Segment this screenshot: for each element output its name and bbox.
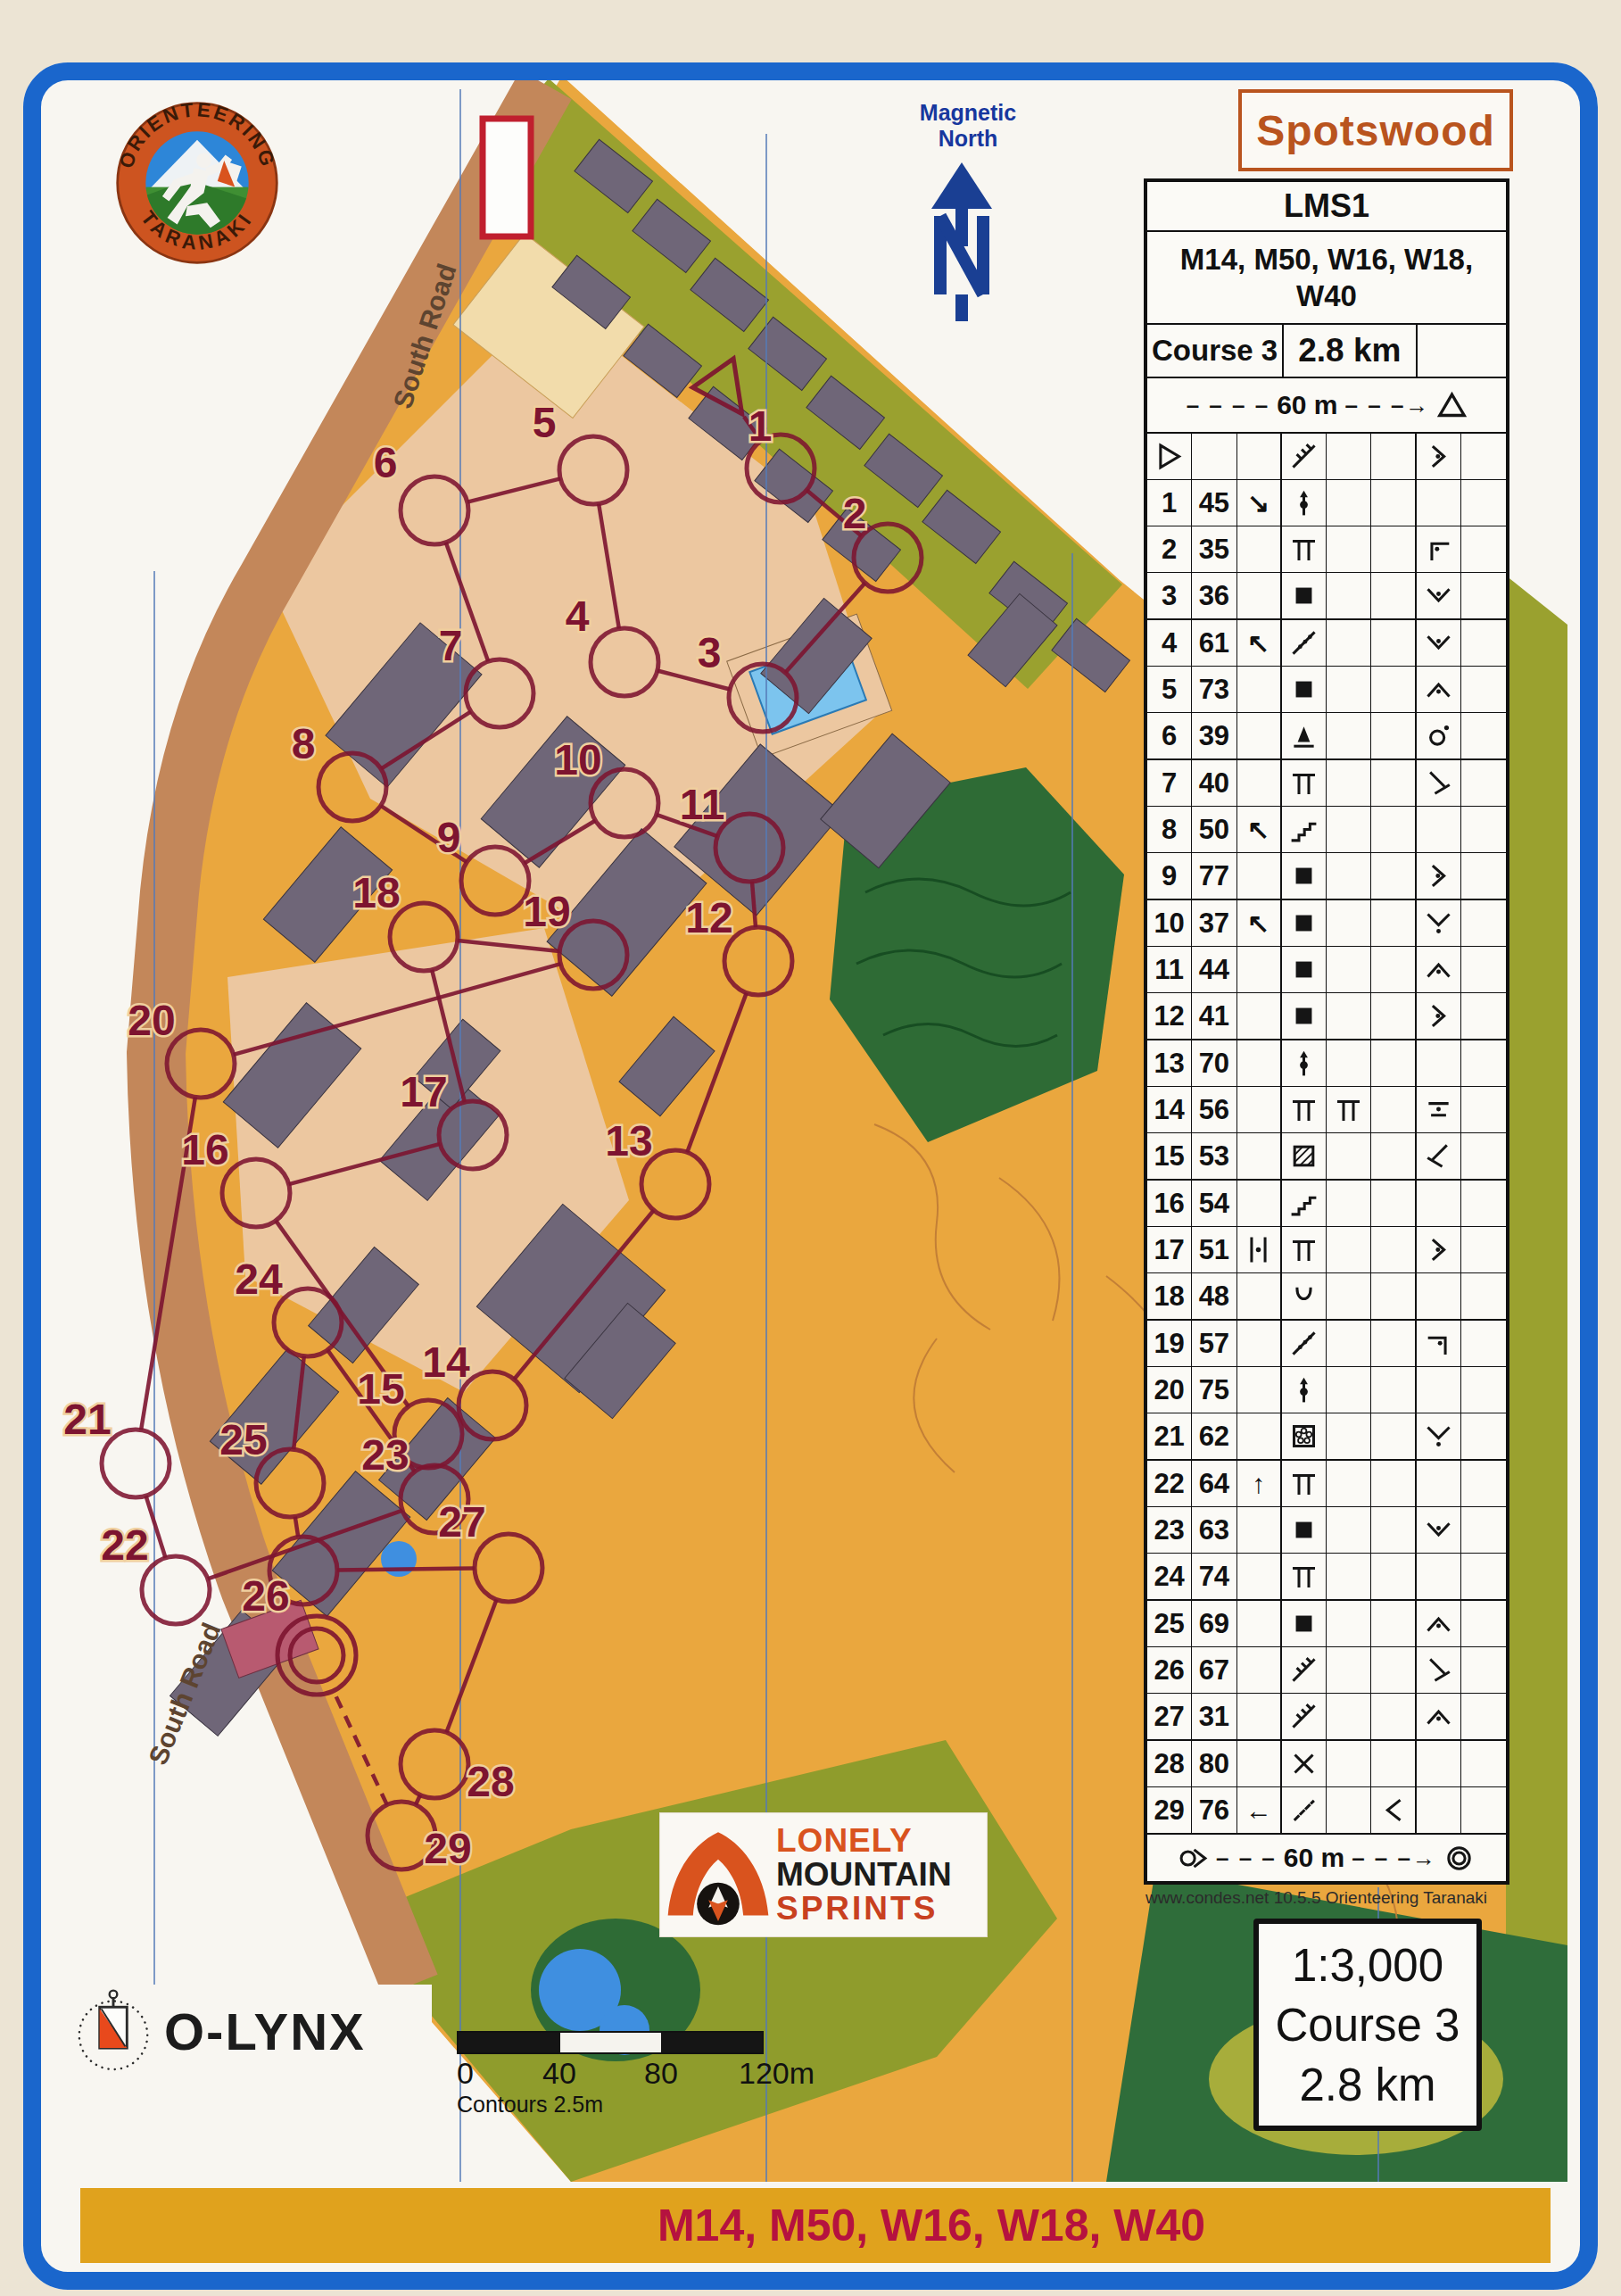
cd-row-21: 2162 — [1147, 1413, 1506, 1461]
cd-cell-col-h — [1461, 1787, 1506, 1833]
cd-row-26: 2667 — [1147, 1647, 1506, 1694]
cd-row-20: 2075 — [1147, 1367, 1506, 1413]
cd-cell-code: 80 — [1192, 1741, 1236, 1786]
cd-cell-col-h — [1461, 1273, 1506, 1319]
cd-cell-number: 5 — [1147, 667, 1192, 712]
cd-cell-col-d — [1282, 1507, 1327, 1553]
cd-cell-code: 35 — [1192, 526, 1236, 572]
cd-row-23: 2363 — [1147, 1507, 1506, 1554]
cd-cell-col-h — [1461, 1413, 1506, 1459]
cd-cell-code: 31 — [1192, 1694, 1236, 1739]
cd-cell-col-h — [1461, 667, 1506, 712]
cd-row-11: 1144 — [1147, 947, 1506, 993]
monument-icon — [1289, 721, 1319, 750]
cd-cell-code: 76 — [1192, 1787, 1236, 1833]
finish-distance-row: – – – 60 m – – –→ — [1147, 1835, 1506, 1881]
fence-icon — [1289, 442, 1319, 471]
cd-cell-number: 23 — [1147, 1507, 1192, 1553]
cd-row-12: 1241 — [1147, 993, 1506, 1040]
cd-cell-col-g — [1417, 434, 1461, 479]
building-icon — [1289, 1609, 1319, 1638]
cd-cell-code: 37 — [1192, 900, 1236, 946]
cd-cell-code: 45 — [1192, 480, 1236, 526]
canopy-icon — [1289, 1095, 1319, 1124]
cd-cell-col-c: ↘ — [1237, 480, 1282, 526]
cd-cell-col-h — [1461, 1554, 1506, 1599]
cd-cell-col-d — [1282, 1227, 1327, 1272]
cd-cell-col-e — [1327, 1367, 1371, 1413]
cd-cell-col-f — [1371, 1647, 1416, 1693]
start-distance-row: – – – – 60 m – – –→ — [1147, 378, 1506, 434]
pole-icon — [1289, 1375, 1319, 1405]
control-number-17: 17 — [400, 1068, 447, 1115]
cd-cell-col-f — [1371, 1461, 1416, 1506]
cd-row-19: 1957 — [1147, 1321, 1506, 1367]
cd-cell-col-g — [1417, 1461, 1461, 1506]
cd-cell-col-g — [1417, 1367, 1461, 1413]
cd-cell-col-c — [1237, 1040, 1282, 1086]
orienteering-taranaki-badge: ORIENTEERING TARANAKI — [114, 100, 280, 269]
cd-cell-col-c — [1237, 434, 1282, 479]
cd-cell-col-e — [1327, 1273, 1371, 1319]
cd-cell-col-c — [1237, 1647, 1282, 1693]
canopy-icon — [1289, 1469, 1319, 1498]
cd-cell-code: 69 — [1192, 1601, 1236, 1646]
cd-row-4: 461↖ — [1147, 620, 1506, 667]
cd-cell-col-h — [1461, 1461, 1506, 1506]
cd-cell-col-g — [1417, 760, 1461, 806]
magnetic-north-line2: North — [874, 126, 1062, 152]
cd-cell-col-c — [1237, 1367, 1282, 1413]
cd-row-6: 639 — [1147, 713, 1506, 760]
cd-cell-col-e — [1327, 1694, 1371, 1739]
cd-cell-col-h — [1461, 760, 1506, 806]
cd-cell-col-e — [1327, 1087, 1371, 1132]
mountain-compass-icon — [660, 1819, 776, 1931]
steps-dots-icon — [1289, 1329, 1319, 1358]
cd-cell-col-c — [1237, 1227, 1282, 1272]
cd-cell-col-e — [1327, 434, 1371, 479]
control-number-18: 18 — [352, 869, 400, 916]
cd-cell-col-g — [1417, 573, 1461, 618]
cd-cell-code: 41 — [1192, 993, 1236, 1039]
cd-cell-col-g — [1417, 1507, 1461, 1553]
cd-cell-col-d — [1282, 573, 1327, 618]
gt-dot-icon — [1424, 1001, 1453, 1031]
cd-cell-col-e — [1327, 1413, 1371, 1459]
cd-cell-col-e — [1327, 1647, 1371, 1693]
club-logo-icon: ORIENTEERING TARANAKI — [114, 100, 280, 266]
course-length: 2.8 km — [1299, 2059, 1435, 2111]
cd-cell-col-g — [1417, 993, 1461, 1039]
cd-cell-code: 62 — [1192, 1413, 1236, 1459]
gt-dot-icon — [1424, 861, 1453, 891]
start-distance: 60 m — [1277, 390, 1337, 420]
cd-cell-number: 18 — [1147, 1273, 1192, 1319]
a-dot-icon — [1424, 675, 1453, 704]
cross-icon — [1289, 1749, 1319, 1778]
cd-cell-col-e — [1327, 620, 1371, 666]
cd-cell-col-h — [1461, 480, 1506, 526]
cd-cell-col-e — [1327, 713, 1371, 758]
cd-cell-col-d — [1282, 993, 1327, 1039]
cd-cell-col-e — [1327, 993, 1371, 1039]
cd-cell-col-f — [1371, 807, 1416, 852]
cd-cell-col-e — [1327, 1133, 1371, 1179]
corner-nw-dot-icon — [1424, 535, 1453, 564]
cd-cell-col-c — [1237, 667, 1282, 712]
building-icon — [1289, 1515, 1319, 1545]
cd-cell-col-f — [1371, 1181, 1416, 1226]
cd-cell-col-f — [1371, 1507, 1416, 1553]
cd-cell-col-g — [1417, 526, 1461, 572]
start-icon — [1154, 442, 1184, 471]
fence-icon — [1289, 1655, 1319, 1685]
control-number-14: 14 — [422, 1339, 470, 1386]
cd-cell-col-f — [1371, 620, 1416, 666]
a-dot-icon — [1424, 955, 1453, 984]
cd-cell-col-e — [1327, 853, 1371, 899]
olynx-text: O-LYNX — [164, 2002, 366, 2061]
a-dot-icon — [1424, 1702, 1453, 1731]
cd-cell-col-d — [1282, 1554, 1327, 1599]
cd-cell-col-e — [1327, 760, 1371, 806]
cd-cell-col-c — [1237, 947, 1282, 992]
finish-icon — [1444, 1844, 1474, 1873]
scale-tick-120: 120m — [739, 2056, 815, 2091]
cd-cell-col-g — [1417, 853, 1461, 899]
cd-cell-col-d — [1282, 947, 1327, 992]
cd-cell-col-h — [1461, 853, 1506, 899]
sponsor-line2: MOUNTAIN — [776, 1858, 952, 1892]
v-dot-icon — [1424, 581, 1453, 610]
cd-cell-col-c — [1237, 1554, 1282, 1599]
control-number-11: 11 — [680, 781, 725, 828]
cd-cell-col-c — [1237, 1741, 1282, 1786]
cd-cell-col-d — [1282, 853, 1327, 899]
less-than-icon — [1378, 1795, 1408, 1825]
control-number-28: 28 — [467, 1758, 514, 1805]
cd-cell-col-f — [1371, 1273, 1416, 1319]
cd-cell-col-g — [1417, 667, 1461, 712]
cd-cell-col-f — [1371, 667, 1416, 712]
cd-cell-col-c — [1237, 760, 1282, 806]
map-title: Spotswood — [1256, 106, 1495, 155]
map-scale: 1:3,000 — [1292, 1939, 1443, 1992]
cd-cell-col-d — [1282, 1694, 1327, 1739]
control-number-7: 7 — [439, 622, 463, 669]
software-credit: www.condes.net 10.5.5 Orienteering Taran… — [1145, 1888, 1520, 1908]
cd-cell-number: 25 — [1147, 1601, 1192, 1646]
cd-row-17: 1751 — [1147, 1227, 1506, 1273]
cd-cell-col-d — [1282, 526, 1327, 572]
dash-diag-icon — [1289, 1795, 1319, 1825]
building-icon — [1289, 1001, 1319, 1031]
cd-cell-col-f — [1371, 480, 1416, 526]
cd-cell-col-d — [1282, 1367, 1327, 1413]
cd-cell-col-d — [1282, 1133, 1327, 1179]
cd-cell-col-f — [1371, 1741, 1416, 1786]
dash-line: – – – — [1216, 1844, 1277, 1872]
cd-row-3: 336 — [1147, 573, 1506, 620]
cd-row-18: 1848 — [1147, 1273, 1506, 1321]
map-title-box: Spotswood — [1238, 89, 1513, 171]
cd-cell-col-d — [1282, 1040, 1327, 1086]
cd-cell-col-d — [1282, 1321, 1327, 1366]
cd-cell-code: 50 — [1192, 807, 1236, 852]
cd-cell-code: 51 — [1192, 1227, 1236, 1272]
cd-cell-code: 74 — [1192, 1554, 1236, 1599]
cd-cell-number: 13 — [1147, 1040, 1192, 1086]
cd-cell-col-f — [1371, 1321, 1416, 1366]
cd-cell-number: 24 — [1147, 1554, 1192, 1599]
cd-cell-col-g — [1417, 480, 1461, 526]
cd-row-9: 977 — [1147, 853, 1506, 900]
cd-cell-col-d — [1282, 667, 1327, 712]
cd-cell-col-c — [1237, 1133, 1282, 1179]
cd-cell-col-c — [1237, 853, 1282, 899]
cd-cell-col-g — [1417, 1321, 1461, 1366]
slash-foot-sw-icon — [1424, 1141, 1453, 1171]
cd-cell-col-e — [1327, 480, 1371, 526]
slash-foot-icon — [1424, 1655, 1453, 1685]
canopy-icon — [1289, 1562, 1319, 1591]
building-icon — [1289, 955, 1319, 984]
cd-cell-number: 16 — [1147, 1181, 1192, 1226]
cd-cell-col-g — [1417, 807, 1461, 852]
cd-row-24: 2474 — [1147, 1554, 1506, 1601]
cd-cell-col-d — [1282, 807, 1327, 852]
cd-cell-col-f — [1371, 1601, 1416, 1646]
cd-row-5: 573 — [1147, 667, 1506, 713]
cd-cell-col-e — [1327, 1321, 1371, 1366]
cd-cell-col-c — [1237, 713, 1282, 758]
last-control-icon — [1179, 1844, 1209, 1873]
cd-cell-col-e — [1327, 573, 1371, 618]
cd-cell-number: 27 — [1147, 1694, 1192, 1739]
pole-icon — [1289, 488, 1319, 518]
cd-cell-col-h — [1461, 620, 1506, 666]
cd-cell-number: 29 — [1147, 1787, 1192, 1833]
control-circle-21 — [102, 1430, 170, 1497]
cd-cell-col-f — [1371, 853, 1416, 899]
arrow-nw-icon: ↖ — [1247, 630, 1270, 657]
cd-cell-col-g — [1417, 1787, 1461, 1833]
control-number-25: 25 — [219, 1416, 267, 1463]
cd-cell-number: 11 — [1147, 947, 1192, 992]
cd-cell-col-h — [1461, 1694, 1506, 1739]
building-icon — [1289, 861, 1319, 891]
classes-list: M14, M50, W16, W18, W40 — [1147, 232, 1506, 325]
cd-cell-col-e — [1327, 1461, 1371, 1506]
stairs-icon — [1289, 1189, 1319, 1218]
cd-cell-col-f — [1371, 1367, 1416, 1413]
magnetic-north-label: Magnetic North — [874, 100, 1062, 152]
cd-cell-code: 48 — [1192, 1273, 1236, 1319]
olynx-flag-icon — [75, 1986, 152, 2076]
cd-cell-col-h — [1461, 1087, 1506, 1132]
cd-cell-col-f — [1371, 713, 1416, 758]
cd-row-16: 1654 — [1147, 1181, 1506, 1227]
corner-ne-dot-icon — [1424, 1329, 1453, 1358]
cd-cell-col-h — [1461, 1133, 1506, 1179]
start-triangle-icon — [1437, 391, 1467, 420]
scale-bar-graphic — [457, 2031, 764, 2054]
cd-cell-col-f — [1371, 1413, 1416, 1459]
a-dot-icon — [1424, 1609, 1453, 1638]
cd-cell-col-c: ↑ — [1237, 1461, 1282, 1506]
sponsor-line3: SPRINTS — [776, 1892, 952, 1926]
control-number-21: 21 — [63, 1396, 111, 1443]
dash-arrow: – – –→ — [1352, 1844, 1437, 1872]
cd-cell-col-c: ↖ — [1237, 900, 1282, 946]
cd-cell-col-h — [1461, 434, 1506, 479]
control-number-8: 8 — [292, 720, 316, 767]
cd-cell-code: 56 — [1192, 1087, 1236, 1132]
control-number-10: 10 — [554, 736, 601, 783]
cd-cell-col-c — [1237, 1087, 1282, 1132]
cd-row-7: 740 — [1147, 760, 1506, 807]
cd-cell-col-d — [1282, 1647, 1327, 1693]
cd-cell-col-d — [1282, 480, 1327, 526]
cd-row-15: 1553 — [1147, 1133, 1506, 1181]
cd-cell-col-f — [1371, 1227, 1416, 1272]
cd-cell-col-e — [1327, 667, 1371, 712]
cd-cell-code: 44 — [1192, 947, 1236, 992]
cd-row-2: 235 — [1147, 526, 1506, 573]
cd-cell-col-f — [1371, 573, 1416, 618]
cd-cell-code: 36 — [1192, 573, 1236, 618]
course-climb — [1418, 325, 1507, 377]
control-description-sheet: LMS1 M14, M50, W16, W18, W40 Course 3 2.… — [1144, 178, 1509, 1885]
cd-cell-col-f — [1371, 993, 1416, 1039]
control-number-15: 15 — [357, 1365, 404, 1413]
control-number-29: 29 — [424, 1825, 471, 1872]
cd-cell-col-c — [1237, 1273, 1282, 1319]
course-name: Course 3 — [1147, 325, 1284, 377]
cd-cell-col-g — [1417, 713, 1461, 758]
event-code: LMS1 — [1147, 182, 1506, 232]
cd-cell-number: 8 — [1147, 807, 1192, 852]
cd-cell-col-f — [1371, 947, 1416, 992]
control-number-27: 27 — [438, 1498, 485, 1546]
paved-icon — [1289, 1141, 1319, 1171]
cd-cell-col-h — [1461, 1321, 1506, 1366]
cd-cell-col-c — [1237, 526, 1282, 572]
control-number-23: 23 — [361, 1431, 409, 1479]
cd-cell-code: 77 — [1192, 853, 1236, 899]
gt-dot-icon — [1424, 442, 1453, 471]
cd-cell-col-g — [1417, 1040, 1461, 1086]
cd-cell-col-e — [1327, 1787, 1371, 1833]
cd-row-27: 2731 — [1147, 1694, 1506, 1741]
control-number-4: 4 — [566, 593, 590, 640]
cd-cell-col-d — [1282, 1461, 1327, 1506]
control-number-13: 13 — [605, 1117, 652, 1165]
cd-row-start — [1147, 434, 1506, 480]
scale-bar: 0 40 80 120m Contours 2.5m — [457, 2031, 831, 2118]
lonely-mountain-sprints-logo: LONELY MOUNTAIN SPRINTS — [660, 1813, 987, 1936]
cd-cell-col-e — [1327, 900, 1371, 946]
cd-cell-col-c — [1237, 1694, 1282, 1739]
cd-cell-col-d — [1282, 1273, 1327, 1319]
cd-cell-col-c — [1237, 1181, 1282, 1226]
arrow-nw-icon: ↖ — [1247, 910, 1270, 937]
building-icon — [1289, 908, 1319, 938]
control-number-24: 24 — [235, 1256, 283, 1303]
classes-banner-text: M14, M50, W16, W18, W40 — [196, 2200, 1621, 2251]
slash-foot-icon — [1424, 768, 1453, 798]
cd-cell-col-h — [1461, 573, 1506, 618]
circle-dot-icon — [1424, 721, 1453, 750]
dash-line: – – – – — [1187, 392, 1270, 419]
cd-cell-col-g — [1417, 947, 1461, 992]
cd-row-29: 2976← — [1147, 1787, 1506, 1835]
cd-cell-col-f — [1371, 434, 1416, 479]
cd-cell-number — [1147, 434, 1192, 479]
cd-cell-col-f — [1371, 1787, 1416, 1833]
cd-cell-number: 17 — [1147, 1227, 1192, 1272]
cd-cell-col-h — [1461, 1227, 1506, 1272]
cd-cell-col-g — [1417, 1741, 1461, 1786]
classes-banner: M14, M50, W16, W18, W40 — [80, 2188, 1551, 2263]
cd-row-25: 2569 — [1147, 1601, 1506, 1647]
north-arrow-icon — [921, 161, 1003, 329]
fence-icon — [1289, 1702, 1319, 1731]
cd-cell-col-h — [1461, 1181, 1506, 1226]
cd-cell-number: 3 — [1147, 573, 1192, 618]
cd-cell-code: 40 — [1192, 760, 1236, 806]
cd-cell-col-f — [1371, 760, 1416, 806]
v-dot-below-icon — [1424, 908, 1453, 938]
cd-cell-col-d — [1282, 713, 1327, 758]
cd-cell-col-d — [1282, 1087, 1327, 1132]
cd-cell-col-d — [1282, 620, 1327, 666]
gt-dot-icon — [1424, 1235, 1453, 1264]
scale-tick-40: 40 — [542, 2056, 576, 2091]
cd-cell-col-d — [1282, 1413, 1327, 1459]
control-number-5: 5 — [533, 399, 557, 446]
pole-icon — [1289, 1049, 1319, 1078]
canopy-icon — [1334, 1095, 1363, 1124]
control-circle-22 — [142, 1556, 210, 1624]
reserved-box — [483, 119, 531, 236]
cd-row-13: 1370 — [1147, 1040, 1506, 1087]
cd-cell-col-e — [1327, 1507, 1371, 1553]
cd-cell-col-h — [1461, 1507, 1506, 1553]
cd-cell-col-d — [1282, 900, 1327, 946]
cd-cell-col-e — [1327, 807, 1371, 852]
v-dot-below-icon — [1424, 1422, 1453, 1451]
cd-cell-col-g — [1417, 1413, 1461, 1459]
v-dot-icon — [1424, 628, 1453, 658]
control-number-1: 1 — [748, 402, 773, 450]
cd-cell-col-f — [1371, 1554, 1416, 1599]
cd-cell-col-c — [1237, 1601, 1282, 1646]
cd-cell-col-g — [1417, 1694, 1461, 1739]
cd-cell-col-d — [1282, 1181, 1327, 1226]
cd-cell-number: 2 — [1147, 526, 1192, 572]
arrow-se-icon: ↘ — [1247, 490, 1270, 517]
cd-cell-col-g — [1417, 900, 1461, 946]
cd-cell-col-d — [1282, 434, 1327, 479]
canopy-icon — [1289, 1235, 1319, 1264]
cd-cell-col-f — [1371, 526, 1416, 572]
cd-cell-col-h — [1461, 900, 1506, 946]
cd-cell-col-g — [1417, 1227, 1461, 1272]
scale-tick-0: 0 — [457, 2056, 474, 2091]
cd-cell-col-h — [1461, 1647, 1506, 1693]
